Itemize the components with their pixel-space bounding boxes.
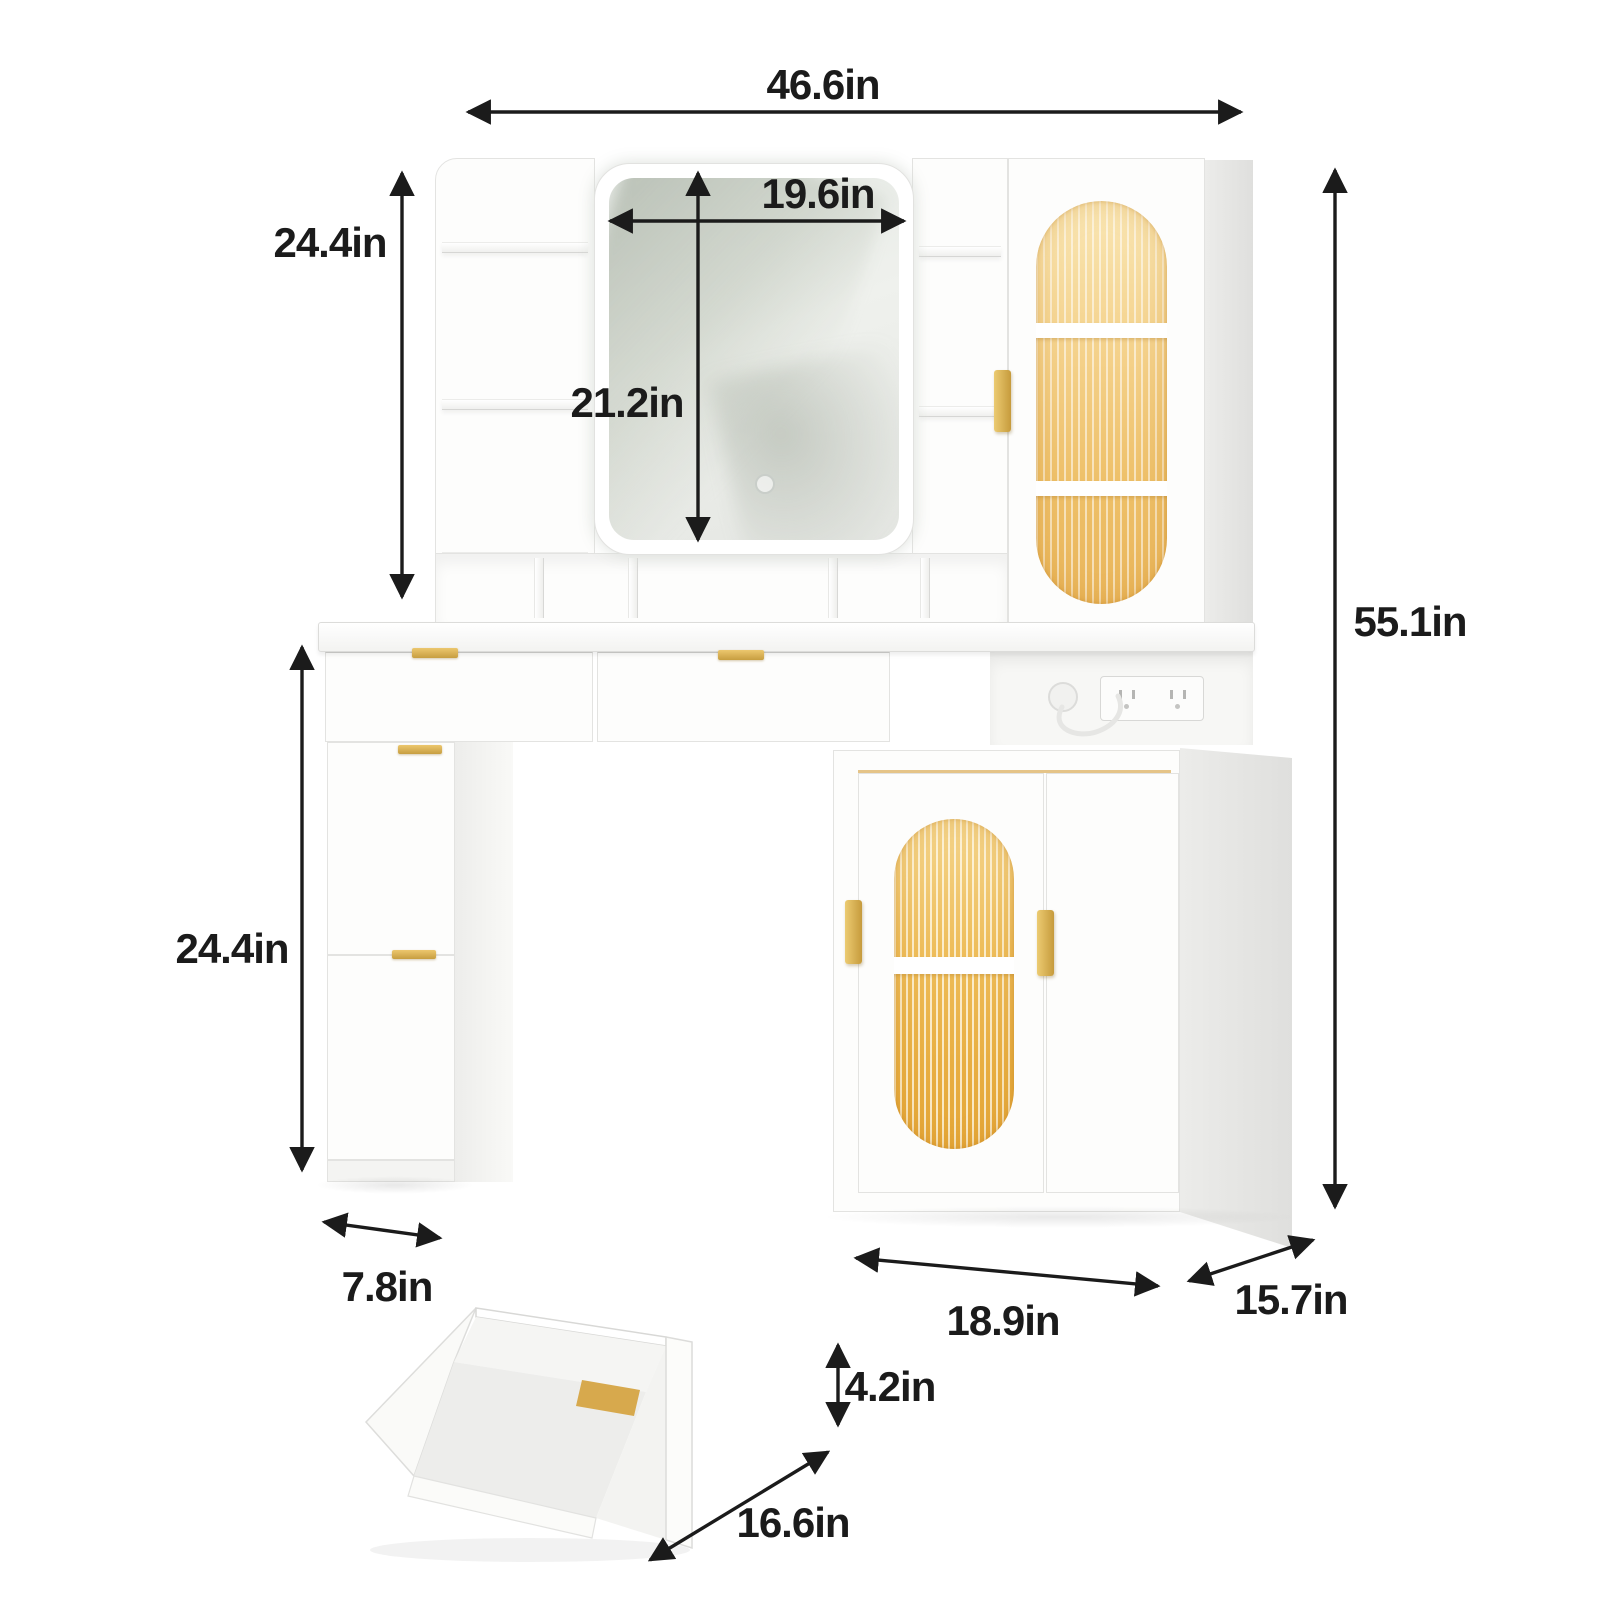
dimension-arrow-cabinet-depth bbox=[1189, 1240, 1313, 1281]
desk-drawer-left bbox=[325, 652, 593, 742]
cubby-divider bbox=[534, 558, 544, 618]
dimension-label-cabinet-width: 18.9in bbox=[946, 1300, 1059, 1342]
cabinet-door-handle bbox=[1037, 910, 1054, 976]
desk-drawer-handle bbox=[718, 650, 764, 660]
cabinet-door-handle bbox=[845, 900, 862, 964]
open-cubby-row bbox=[435, 553, 1008, 623]
dimension-label-mirror-width: 19.6in bbox=[761, 173, 874, 215]
desktop bbox=[318, 622, 1255, 652]
pedestal-side-face bbox=[455, 742, 513, 1182]
floor-shadow bbox=[820, 1206, 1300, 1228]
fluted-glass-window bbox=[1036, 201, 1167, 604]
dimension-label-drawer-height: 4.2in bbox=[845, 1366, 936, 1408]
dimension-label-drawer-depth: 16.6in bbox=[736, 1502, 849, 1544]
dimension-label-pedestal-depth: 7.8in bbox=[342, 1266, 433, 1308]
dimension-label-total-height: 55.1in bbox=[1353, 601, 1466, 643]
dimension-label-hutch-height: 24.4in bbox=[273, 222, 386, 264]
cubby-divider bbox=[628, 558, 638, 618]
plug-cable bbox=[1030, 652, 1150, 745]
dimension-diagram: 46.6in 24.4in 19.6in 21.2in 55.1in 24.4i… bbox=[0, 0, 1600, 1600]
hutch-middle-shelf bbox=[919, 406, 1001, 417]
floor-shadow bbox=[315, 1176, 475, 1194]
glass-shelf-line bbox=[1036, 481, 1167, 496]
led-mirror bbox=[594, 163, 914, 555]
dimension-label-mirror-height: 21.2in bbox=[570, 382, 683, 424]
lower-cabinet-side-face bbox=[1180, 748, 1292, 1248]
dimension-label-cabinet-depth: 15.7in bbox=[1234, 1279, 1347, 1321]
lower-cabinet bbox=[833, 750, 1180, 1212]
drawer-shadow bbox=[370, 1538, 690, 1562]
pedestal-drawer-bottom bbox=[327, 955, 455, 1160]
pedestal-drawer-handle bbox=[392, 950, 436, 959]
tall-cabinet-door-handle bbox=[994, 370, 1011, 432]
dimension-label-pedestal-height: 24.4in bbox=[175, 928, 288, 970]
dimension-label-total-width: 46.6in bbox=[766, 64, 879, 106]
glass-shelf-line bbox=[1036, 323, 1167, 338]
fluted-glass-door-window bbox=[894, 819, 1014, 1149]
hutch-left-shelf bbox=[442, 399, 588, 410]
power-outlet-icon bbox=[1165, 685, 1191, 713]
pedestal-drawer-top bbox=[327, 742, 455, 955]
outlet-recess bbox=[990, 652, 1253, 745]
desk-drawer-handle bbox=[412, 648, 458, 658]
cubby-divider bbox=[920, 558, 930, 618]
detached-drawer bbox=[330, 1280, 730, 1580]
pedestal-drawer-handle bbox=[398, 745, 442, 754]
cubby-divider bbox=[828, 558, 838, 618]
desk-drawer-right bbox=[597, 652, 890, 742]
cabinet-door-right bbox=[1046, 773, 1179, 1193]
mirror-touch-sensor-icon bbox=[755, 474, 775, 494]
drawer-front-panel bbox=[666, 1337, 692, 1548]
cabinet-door-left bbox=[858, 773, 1044, 1193]
glass-shelf-line bbox=[894, 957, 1014, 974]
dimension-arrow-pedestal-depth bbox=[324, 1222, 440, 1238]
hutch-middle-shelf bbox=[919, 246, 1001, 257]
dimension-arrow-cabinet-width bbox=[856, 1258, 1158, 1286]
hutch-left-shelf bbox=[442, 242, 588, 253]
mirror-glass bbox=[609, 178, 899, 540]
